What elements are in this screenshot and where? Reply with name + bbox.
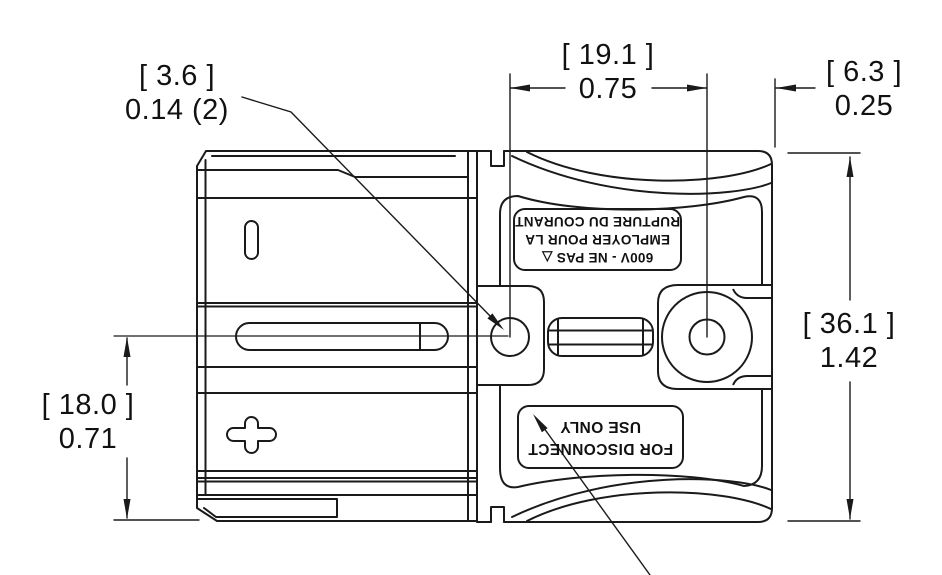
french-warning-label: 600V - NE PAS △ EMPLOYER POUR LA RUPTURE… [513,208,682,271]
dim-hole-spacing: [ 19.1 ] 0.75 [528,38,688,106]
dim-imperial: 0.75 [528,72,688,106]
label-line: FOR DISCONNECT [528,437,673,459]
label-line: EMPLOYER POUR LA [525,231,670,249]
arrow-left-icon [776,85,796,92]
left-housing-features [227,221,448,453]
latch-slot [245,221,258,259]
dim-imperial: 0.14 (2) [97,93,257,127]
arrow-left-icon [510,85,530,92]
arrow-down-icon [124,499,131,519]
bottom-notch [491,507,504,522]
right-housing-features [478,285,772,389]
cross-cutout [227,417,276,453]
label-line: 600V - NE PAS △ [542,249,653,267]
leader-hole-diameter [242,97,492,318]
dimension-arrowheads [124,85,854,520]
arrow-right-icon [687,85,707,92]
dim-imperial: 1.42 [779,341,919,375]
arrow-down-icon [847,499,854,519]
dim-imperial: 0.25 [794,89,934,123]
label-line: RUPTURE DU COURANT [515,213,680,231]
label-line: USE ONLY [560,415,641,437]
dim-overall-height: [ 36.1 ] 1.42 [779,307,919,375]
dim-metric: [ 18.0 ] [8,388,168,422]
dim-metric: [ 19.1 ] [528,38,688,72]
right-bolt-boss [658,285,772,389]
center-slot [548,318,653,356]
dim-metric: [ 6.3 ] [794,55,934,89]
dim-imperial: 0.71 [8,422,168,456]
dim-hole-diameter: [ 3.6 ] 0.14 (2) [97,59,257,127]
dim-metric: [ 3.6 ] [97,59,257,93]
dim-edge-offset: [ 6.3 ] 0.25 [794,55,934,123]
dim-metric: [ 36.1 ] [779,307,919,341]
top-notch [491,151,504,166]
arrow-up-icon [847,157,854,177]
english-warning-label: FOR DISCONNECT USE ONLY [517,405,684,469]
connector-dimension-drawing: [ 3.6 ] 0.14 (2) [ 19.1 ] 0.75 [ 6.3 ] 0… [0,0,942,575]
ext-lines-hole-spacing [510,74,707,337]
dim-centerline-height: [ 18.0 ] 0.71 [8,388,168,456]
arrow-up-icon [124,337,131,357]
